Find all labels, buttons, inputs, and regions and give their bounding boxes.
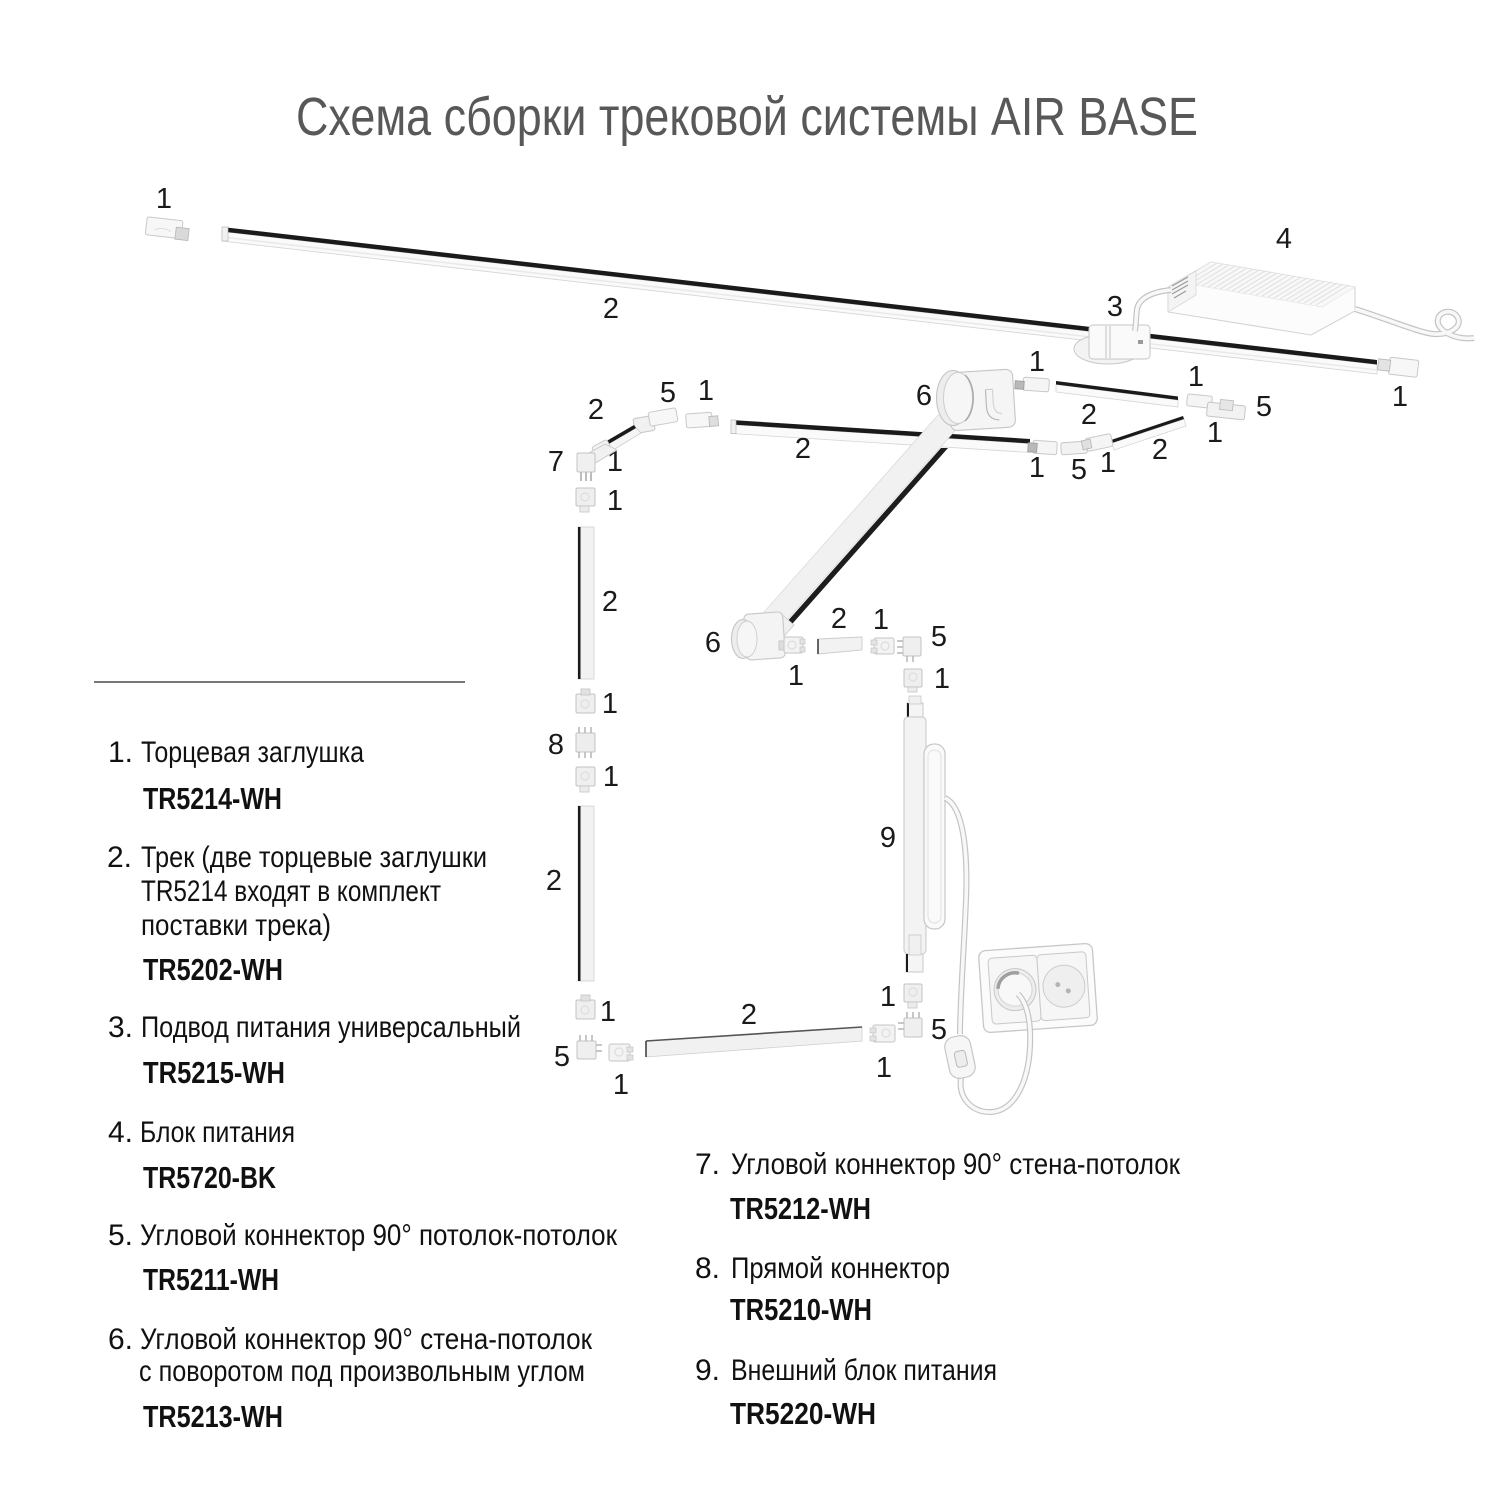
svg-text:1: 1 bbox=[1188, 361, 1204, 393]
svg-text:4: 4 bbox=[1276, 223, 1292, 255]
svg-text:с поворотом под произвольным у: с поворотом под произвольным углом bbox=[139, 1355, 585, 1388]
svg-text:TR5220-WH: TR5220-WH bbox=[730, 1396, 876, 1431]
svg-text:2: 2 bbox=[603, 293, 619, 325]
svg-text:2: 2 bbox=[1152, 434, 1168, 466]
svg-text:1: 1 bbox=[613, 1069, 629, 1101]
svg-text:TR5215-WH: TR5215-WH bbox=[143, 1055, 285, 1090]
svg-text:9.: 9. bbox=[695, 1354, 720, 1387]
svg-text:1: 1 bbox=[934, 663, 950, 695]
svg-text:1: 1 bbox=[880, 981, 896, 1013]
svg-text:Угловой коннектор 90° потолок-: Угловой коннектор 90° потолок-потолок bbox=[140, 1219, 618, 1252]
svg-text:1: 1 bbox=[1100, 447, 1116, 479]
svg-text:6: 6 bbox=[705, 627, 721, 659]
svg-text:2: 2 bbox=[741, 999, 757, 1031]
svg-text:1: 1 bbox=[1029, 452, 1045, 484]
svg-text:1: 1 bbox=[156, 183, 172, 215]
svg-text:5: 5 bbox=[554, 1041, 570, 1073]
svg-text:8: 8 bbox=[548, 729, 564, 761]
svg-text:9: 9 bbox=[880, 822, 896, 854]
svg-text:1: 1 bbox=[873, 604, 889, 636]
svg-text:2: 2 bbox=[588, 394, 604, 426]
svg-text:Торцевая заглушка: Торцевая заглушка bbox=[141, 736, 364, 769]
svg-text:TR5211-WH: TR5211-WH bbox=[143, 1262, 279, 1297]
svg-text:3: 3 bbox=[1107, 291, 1123, 323]
svg-text:5: 5 bbox=[1071, 454, 1087, 486]
svg-text:Трек (две торцевые заглушки: Трек (две торцевые заглушки bbox=[141, 841, 487, 874]
svg-text:Угловой коннектор 90° стена-по: Угловой коннектор 90° стена-потолок bbox=[140, 1323, 593, 1356]
svg-text:Прямой коннектор: Прямой коннектор bbox=[731, 1252, 950, 1285]
svg-text:TR5214 входят в комплект: TR5214 входят в комплект bbox=[141, 875, 441, 908]
svg-text:1: 1 bbox=[876, 1052, 892, 1084]
svg-text:4.: 4. bbox=[108, 1116, 133, 1149]
svg-text:7: 7 bbox=[548, 446, 564, 478]
svg-text:5: 5 bbox=[1256, 391, 1272, 423]
svg-text:Блок питания: Блок питания bbox=[140, 1116, 295, 1149]
svg-text:5: 5 bbox=[931, 621, 947, 653]
svg-text:6: 6 bbox=[916, 380, 932, 412]
svg-text:3.: 3. bbox=[108, 1011, 133, 1044]
svg-text:Угловой коннектор 90° стена-по: Угловой коннектор 90° стена-потолок bbox=[731, 1148, 1181, 1181]
svg-text:TR5720-BK: TR5720-BK bbox=[143, 1160, 276, 1195]
svg-text:1: 1 bbox=[1207, 417, 1223, 449]
svg-text:1: 1 bbox=[1392, 381, 1408, 413]
svg-text:1: 1 bbox=[698, 375, 714, 407]
svg-text:2: 2 bbox=[831, 603, 847, 635]
svg-text:1: 1 bbox=[600, 996, 616, 1028]
svg-text:Схема сборки трековой системы: Схема сборки трековой системы AIR BASE bbox=[296, 87, 1198, 147]
svg-text:TR5202-WH: TR5202-WH bbox=[143, 952, 283, 987]
svg-text:1.: 1. bbox=[108, 736, 133, 769]
svg-text:6.: 6. bbox=[108, 1323, 133, 1356]
svg-text:7.: 7. bbox=[695, 1148, 720, 1181]
svg-text:TR5212-WH: TR5212-WH bbox=[730, 1191, 871, 1226]
svg-text:5.: 5. bbox=[108, 1219, 133, 1252]
svg-text:2: 2 bbox=[1081, 399, 1097, 431]
svg-text:TR5213-WH: TR5213-WH bbox=[143, 1399, 283, 1434]
svg-text:Подвод питания универсальный: Подвод питания универсальный bbox=[141, 1011, 521, 1044]
svg-text:TR5214-WH: TR5214-WH bbox=[143, 781, 282, 816]
svg-text:2.: 2. bbox=[107, 841, 132, 874]
svg-text:5: 5 bbox=[660, 377, 676, 409]
svg-text:TR5210-WH: TR5210-WH bbox=[730, 1292, 872, 1327]
svg-text:1: 1 bbox=[603, 761, 619, 793]
svg-text:2: 2 bbox=[795, 433, 811, 465]
svg-text:8.: 8. bbox=[695, 1252, 720, 1285]
svg-text:1: 1 bbox=[1029, 346, 1045, 378]
svg-text:5: 5 bbox=[931, 1014, 947, 1046]
svg-text:поставки трека): поставки трека) bbox=[141, 909, 331, 942]
svg-text:1: 1 bbox=[607, 485, 623, 517]
svg-text:Внешний блок питания: Внешний блок питания bbox=[731, 1354, 997, 1387]
svg-text:1: 1 bbox=[602, 688, 618, 720]
svg-text:1: 1 bbox=[788, 660, 804, 692]
svg-text:2: 2 bbox=[546, 865, 562, 897]
svg-text:2: 2 bbox=[602, 586, 618, 618]
